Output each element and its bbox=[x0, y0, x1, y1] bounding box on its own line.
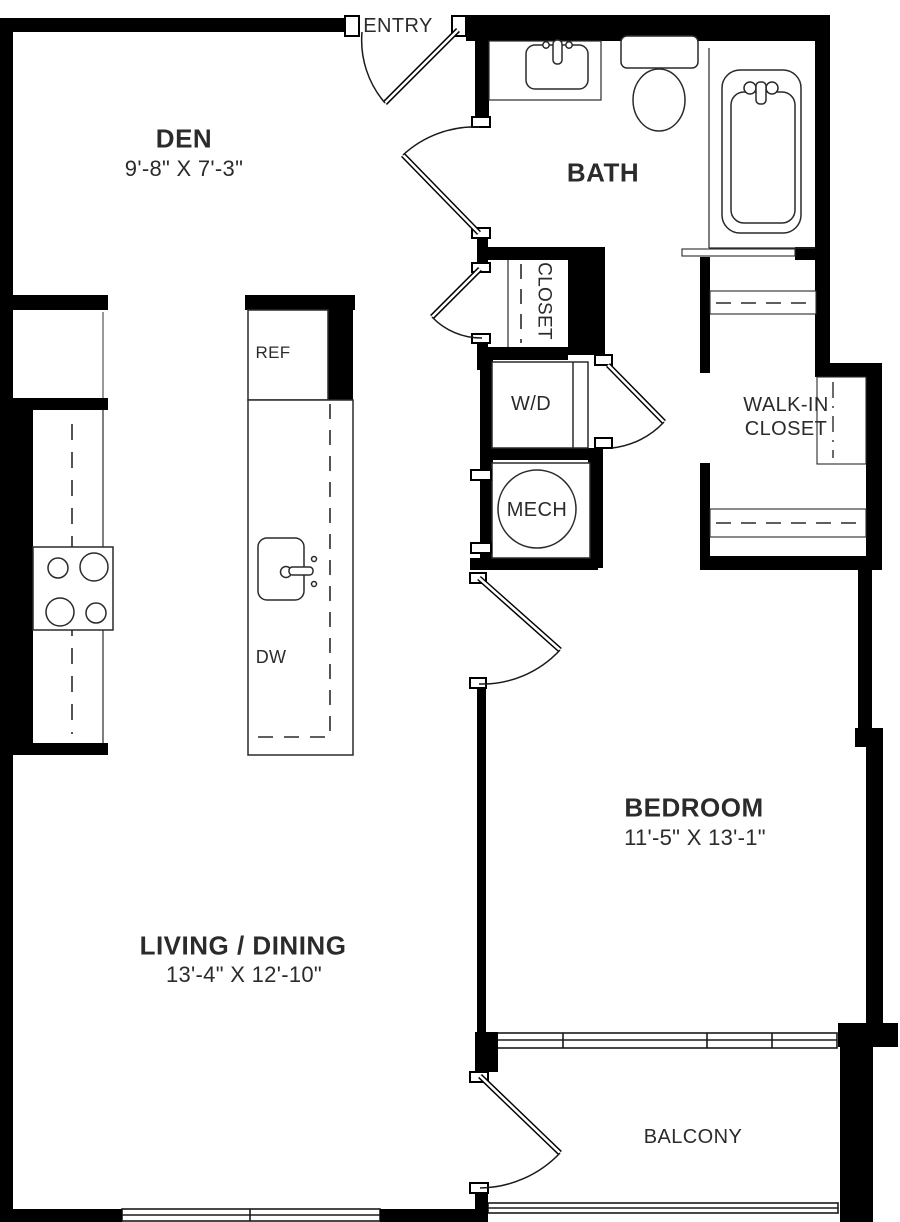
door-swing-arc bbox=[403, 127, 479, 155]
toilet-bowl bbox=[633, 69, 685, 131]
wall bbox=[477, 343, 488, 370]
living-dining-dimensions: 13'-4" X 12'-10" bbox=[166, 962, 322, 988]
wall bbox=[0, 18, 347, 32]
bath-faucet-handle bbox=[543, 42, 549, 48]
dishwasher-label: DW bbox=[256, 647, 287, 669]
doors bbox=[362, 30, 664, 1188]
island-faucet-handle bbox=[312, 582, 317, 587]
balcony-label: BALCONY bbox=[644, 1125, 742, 1149]
refrigerator-label: REF bbox=[256, 343, 291, 363]
hall-closet-label: CLOSET bbox=[532, 262, 555, 340]
wall bbox=[483, 347, 568, 360]
wall bbox=[475, 1032, 498, 1072]
wall bbox=[328, 310, 353, 400]
bathtub-inner bbox=[731, 92, 795, 223]
wall bbox=[568, 247, 605, 355]
wall bbox=[490, 448, 603, 460]
wall bbox=[866, 377, 882, 570]
living-dining-label: LIVING / DINING bbox=[140, 930, 347, 961]
wall bbox=[12, 403, 33, 755]
wall bbox=[795, 247, 815, 260]
wall bbox=[475, 28, 489, 120]
bath-faucet-handle bbox=[566, 42, 572, 48]
bath-sink-faucet bbox=[553, 40, 562, 64]
stove-burner bbox=[48, 558, 68, 578]
laundry-door bbox=[608, 365, 664, 448]
wall bbox=[840, 1047, 873, 1222]
den-label: DEN bbox=[156, 123, 212, 154]
door-jamb bbox=[471, 470, 491, 480]
den-dimensions: 9'-8" X 7'-3" bbox=[125, 156, 243, 182]
wall bbox=[815, 363, 882, 377]
tub-faucet bbox=[756, 82, 766, 104]
wall bbox=[0, 295, 108, 310]
tub-faucet-handle bbox=[744, 82, 756, 94]
entry-door bbox=[362, 30, 458, 103]
laundry-label: W/D bbox=[511, 392, 551, 416]
tub-faucet-handle bbox=[766, 82, 778, 94]
wall bbox=[380, 1209, 477, 1222]
toilet-tank bbox=[621, 36, 698, 68]
door-jamb bbox=[345, 16, 359, 36]
wall bbox=[700, 463, 710, 558]
island-faucet bbox=[289, 567, 313, 575]
wall bbox=[838, 1023, 898, 1047]
door-jamb bbox=[470, 678, 486, 688]
wall bbox=[0, 18, 13, 1222]
wall bbox=[700, 558, 860, 570]
bedroom-label: BEDROOM bbox=[624, 792, 763, 823]
door-swing-arc bbox=[479, 650, 560, 684]
stove-burner bbox=[46, 598, 74, 626]
hall-closet-door bbox=[432, 269, 482, 338]
door-swing-arc bbox=[362, 32, 385, 103]
wall bbox=[477, 688, 486, 1033]
entry-label: ENTRY bbox=[363, 14, 432, 38]
wall bbox=[700, 257, 710, 373]
bath-label: BATH bbox=[567, 157, 639, 188]
door-jamb bbox=[595, 438, 612, 448]
balcony-door bbox=[480, 1076, 560, 1188]
door-swing-arc bbox=[612, 422, 664, 448]
stove-burner bbox=[80, 553, 108, 581]
wall bbox=[815, 15, 830, 363]
floor-plan-drawing bbox=[0, 0, 900, 1222]
linen-shelf bbox=[682, 249, 795, 256]
door-jamb bbox=[472, 117, 490, 127]
wall bbox=[0, 1209, 122, 1222]
walk-in-closet-label: WALK-IN CLOSET bbox=[716, 393, 856, 441]
door-swing-arc bbox=[480, 1153, 560, 1188]
wall bbox=[858, 570, 872, 730]
door-jamb bbox=[595, 355, 612, 365]
island-faucet-handle bbox=[312, 557, 317, 562]
bedroom-dimensions: 11'-5" X 13'-1" bbox=[624, 825, 766, 851]
wall bbox=[475, 1192, 488, 1222]
wall bbox=[866, 747, 883, 1033]
wall bbox=[12, 743, 108, 755]
mech-label: MECH bbox=[507, 498, 568, 522]
floor-plan: DEN 9'-8" X 7'-3" ENTRY BATH CLOSET W/D … bbox=[0, 0, 900, 1222]
wall bbox=[855, 728, 883, 747]
wall bbox=[245, 295, 355, 310]
bath-door bbox=[403, 127, 479, 233]
bedroom-door bbox=[479, 578, 560, 684]
stove-burner bbox=[86, 603, 106, 623]
door-jamb bbox=[471, 543, 491, 553]
